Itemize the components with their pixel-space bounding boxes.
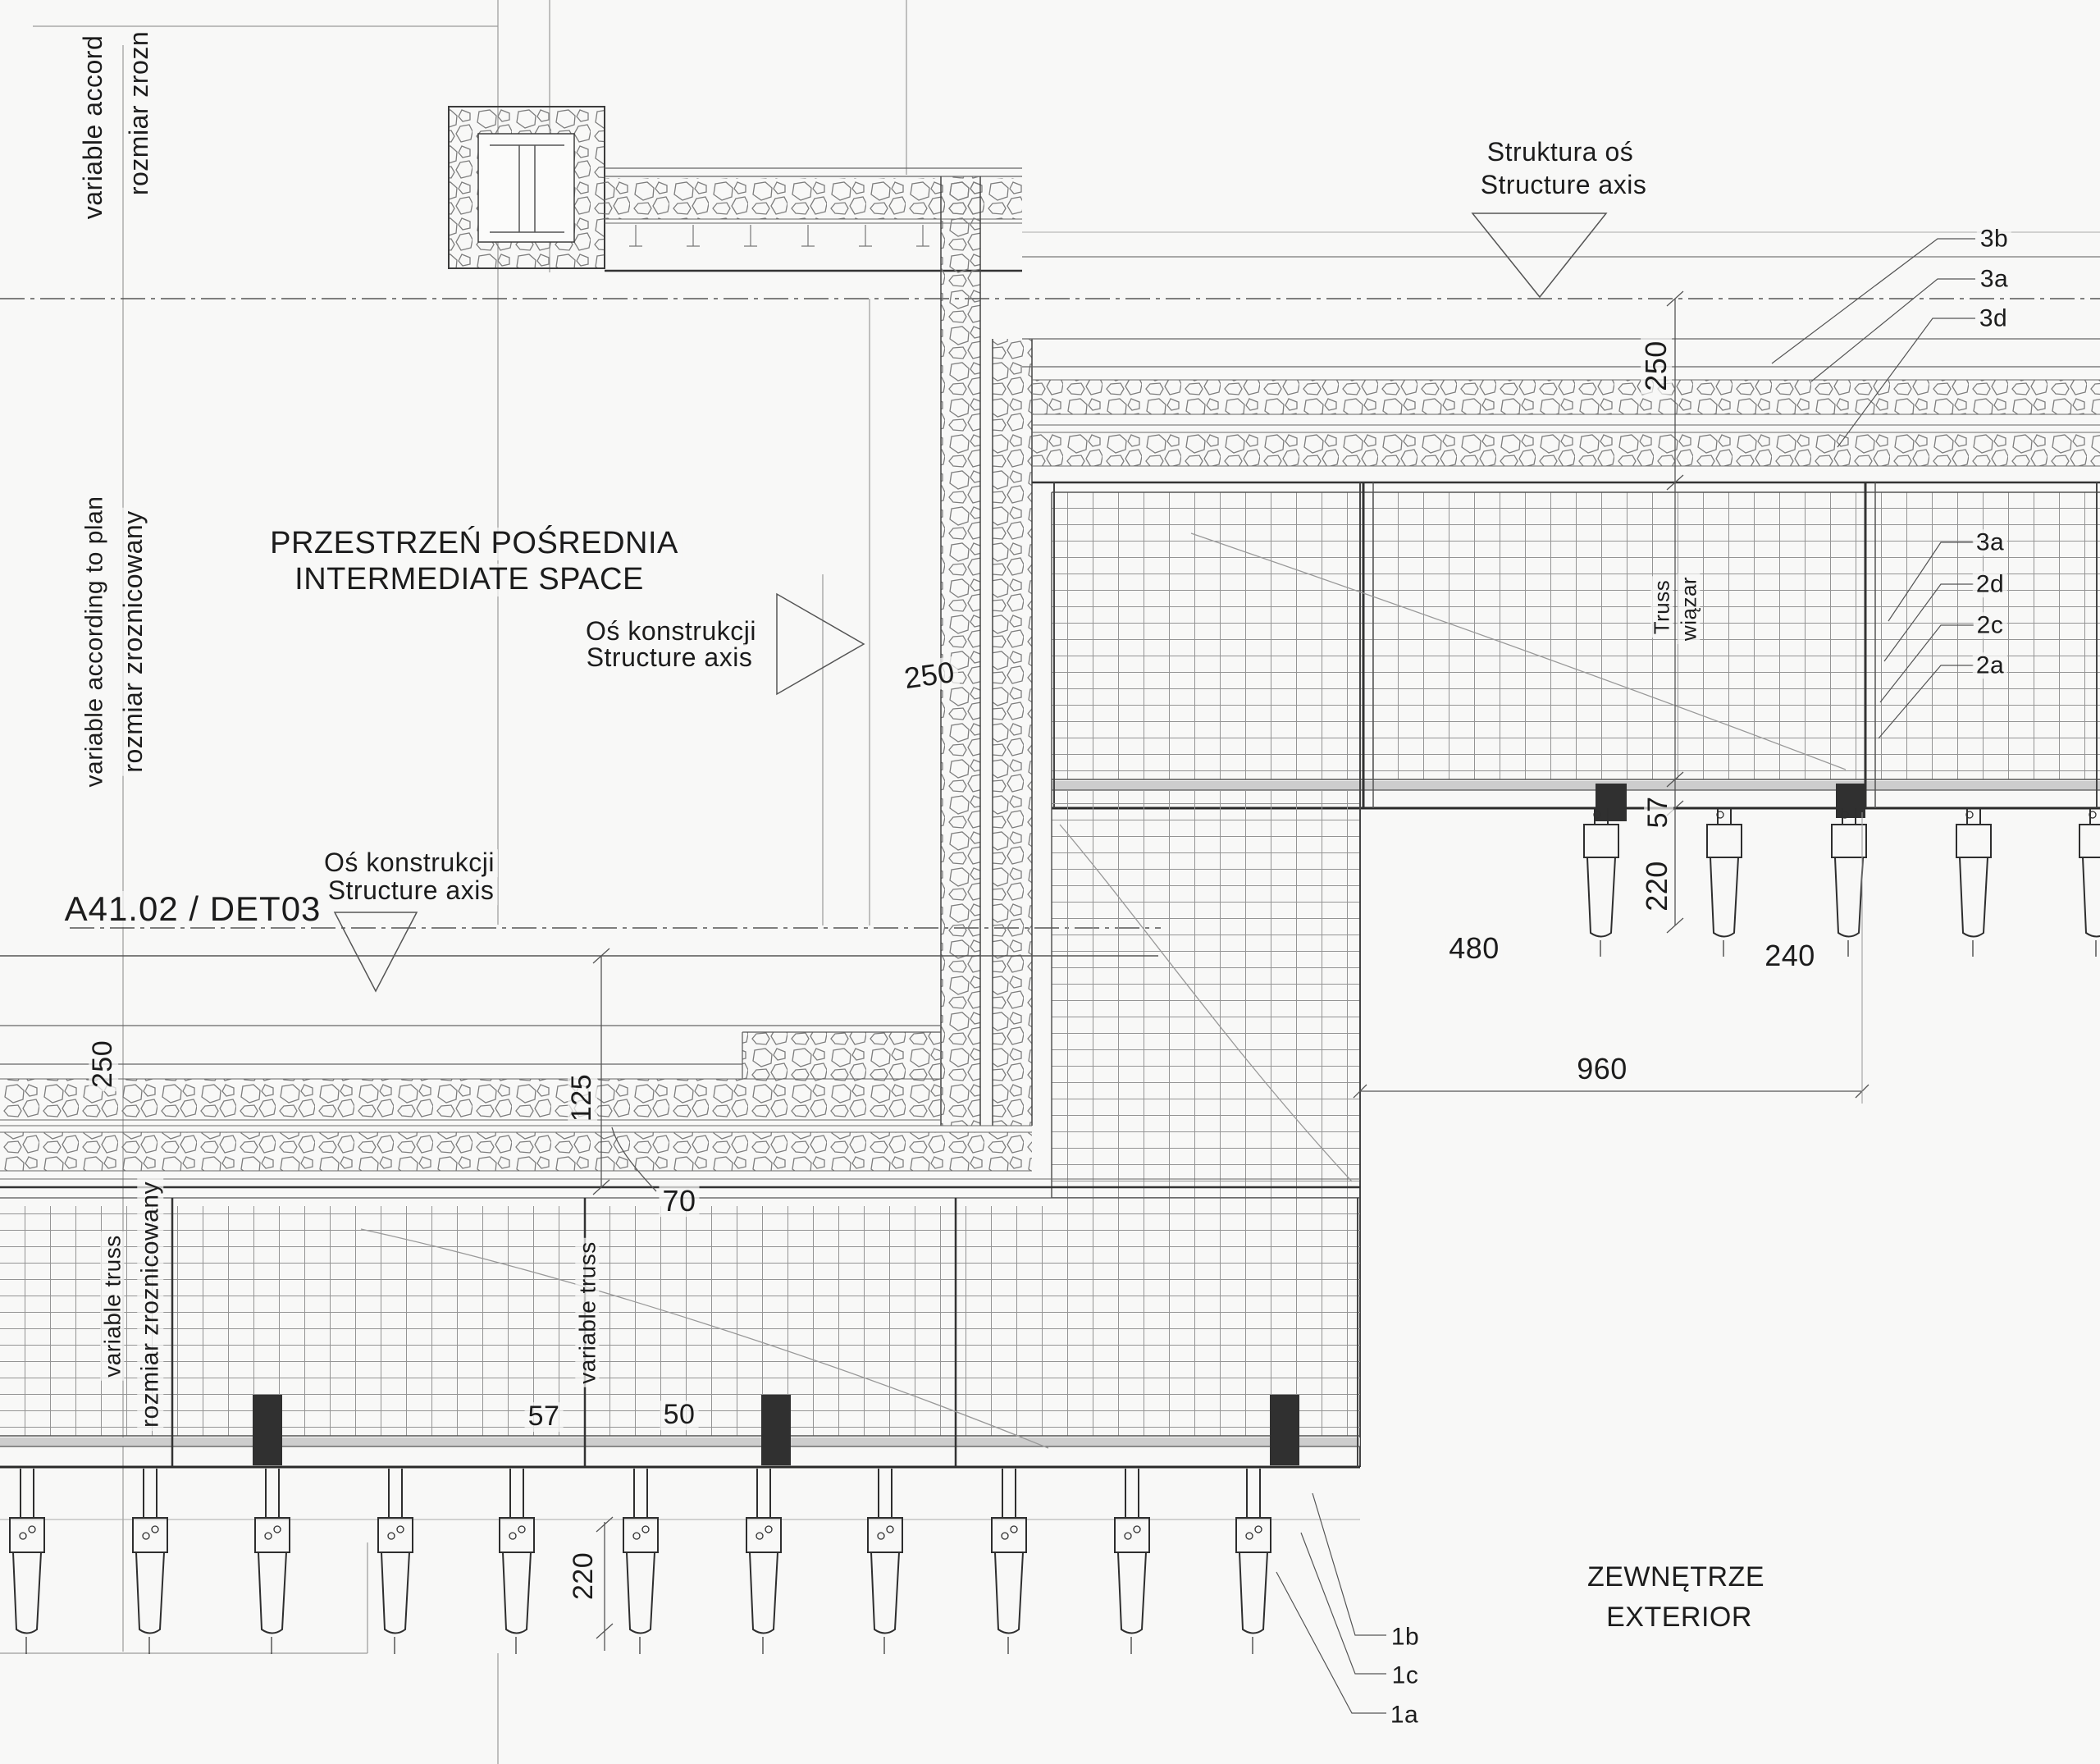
note-mid-left-pl: rozmiar zroznicowany [120,507,148,775]
left-truss [0,1198,1360,1520]
axis-label-corner-en: Structure axis [583,644,756,672]
dimension-250-left-wall: 250 [89,1037,118,1091]
callout-2d: 2d [1973,571,2007,597]
dimension-50-member: 50 [660,1401,699,1430]
axis-label-top-pl: Struktura oś [1484,139,1637,167]
dimension-220-right-anchor: 220 [1641,857,1673,915]
note-left-truss-en: variable truss [100,1232,124,1381]
left-anchor-row [10,1469,1271,1654]
axis-label-lower-en: Structure axis [325,877,498,905]
axis-label-top-en: Structure axis [1477,171,1650,199]
callout-2a: 2a [1973,652,2007,679]
dimension-70: 70 [659,1186,699,1217]
note-right-truss-pl: wiązar [1678,574,1700,644]
axis-triangle-right-corner [777,594,864,694]
callout-2c: 2c [1974,612,2007,638]
blueprint-canvas [0,0,2100,1764]
note-left-truss-pl: rozmiar zroznicowany [137,1178,163,1431]
joint-plate [253,1395,282,1465]
top-left-post [449,107,605,268]
callout-1b: 1b [1388,1624,1422,1650]
dimension-57-member: 57 [525,1402,564,1432]
note-mid-truss: variable truss [575,1238,599,1387]
axis-triangle-down-top [1472,213,1606,297]
joint-plate [1836,784,1865,818]
dimension-250-corner: 250 [899,656,960,694]
zone-title-exterior-pl: ZEWNĘTRZE [1584,1563,1768,1593]
dimension-480: 480 [1445,933,1503,964]
right-truss [1052,482,2100,821]
dimension-960: 960 [1573,1053,1631,1085]
dimension-250-top-right: 250 [1641,337,1672,395]
callout-3a-upper: 3a [1977,266,2011,292]
callout-3a-middle: 3a [1973,529,2007,555]
callout-3b: 3b [1977,226,2011,252]
callout-3d: 3d [1976,305,2011,331]
zone-title-intermediate-pl: PRZESTRZEŃ POŚREDNIA [267,528,682,560]
zone-title-exterior-en: EXTERIOR [1603,1603,1755,1633]
note-mid-left-en: variable according to plan [81,493,107,791]
callout-1c: 1c [1389,1662,1422,1689]
top-wall-band [605,168,2100,271]
dimension-220-left-anchor: 220 [569,1549,599,1603]
dimension-57-right-chord: 57 [1644,793,1673,832]
callout-1a: 1a [1387,1702,1422,1728]
note-right-truss-en: Truss [1650,577,1673,638]
note-top-left-en: variable accord [80,32,107,223]
axis-label-lower-pl: Oś konstrukcji [321,849,498,877]
joint-plate [761,1395,791,1465]
dimension-125: 125 [568,1071,597,1125]
zone-title-intermediate-en: INTERMEDIATE SPACE [291,564,647,596]
dimension-240: 240 [1761,940,1819,971]
axis-label-corner-pl: Oś konstrukcji [582,618,760,646]
joint-plate [1270,1395,1299,1465]
detail-code-title: A41.02 / DET03 [62,891,325,927]
right-wall-band [1022,339,2100,482]
corner-wall-strips [742,176,1032,1126]
note-top-left-pl: rozmiar zrozn [126,28,153,199]
architectural-detail-drawing: variable accord rozmiar zrozn variable a… [0,0,2100,1764]
axis-triangle-down-lower [335,912,417,991]
